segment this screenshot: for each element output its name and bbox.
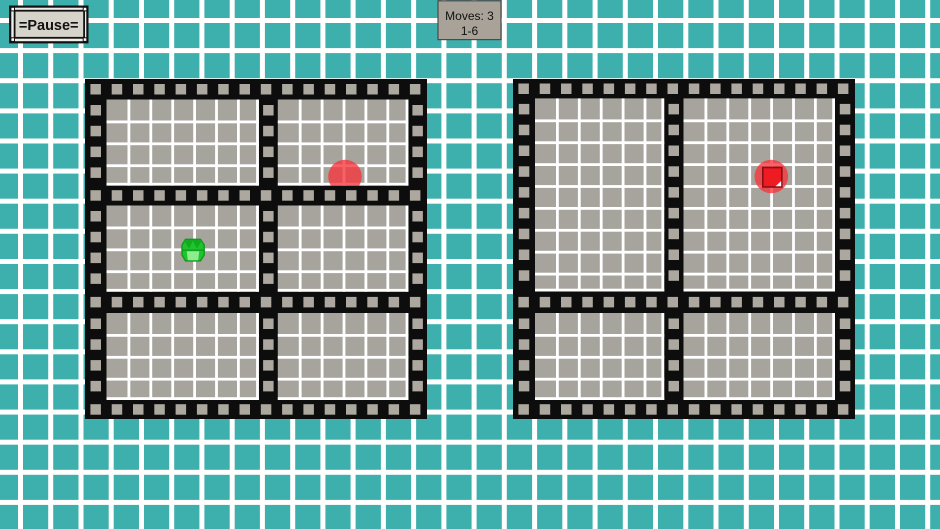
svg-text:Moves: 3: Moves: 3 [445, 9, 494, 23]
svg-text:=Pause=: =Pause= [19, 18, 79, 34]
svg-text:1-6: 1-6 [461, 24, 479, 38]
